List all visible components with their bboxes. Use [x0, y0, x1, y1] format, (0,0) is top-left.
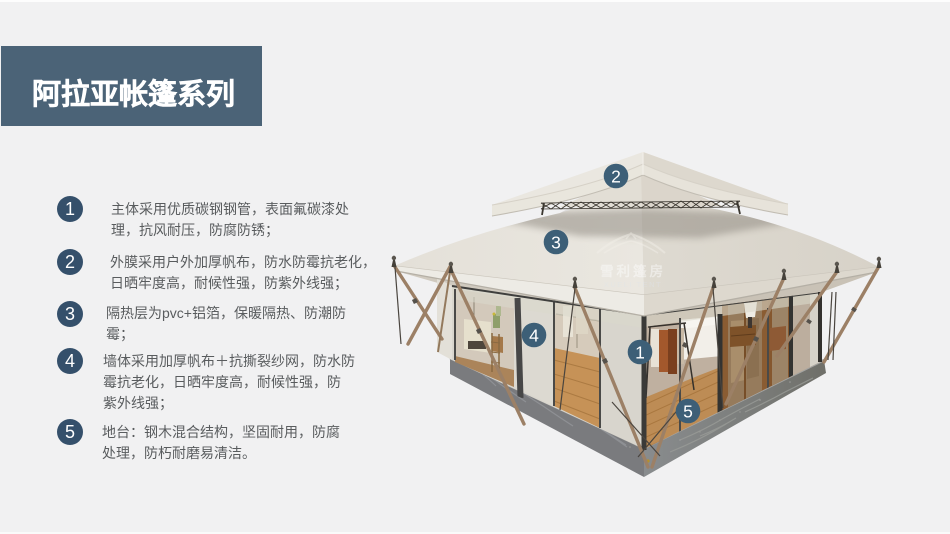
- svg-text:2: 2: [611, 167, 621, 187]
- svg-text:4: 4: [529, 326, 539, 346]
- svg-text:雪利篷房: 雪利篷房: [600, 263, 666, 279]
- svg-text:3: 3: [551, 233, 561, 253]
- svg-text:XUELI TENT: XUELI TENT: [604, 280, 662, 289]
- svg-text:1: 1: [635, 343, 645, 363]
- svg-text:5: 5: [683, 402, 693, 422]
